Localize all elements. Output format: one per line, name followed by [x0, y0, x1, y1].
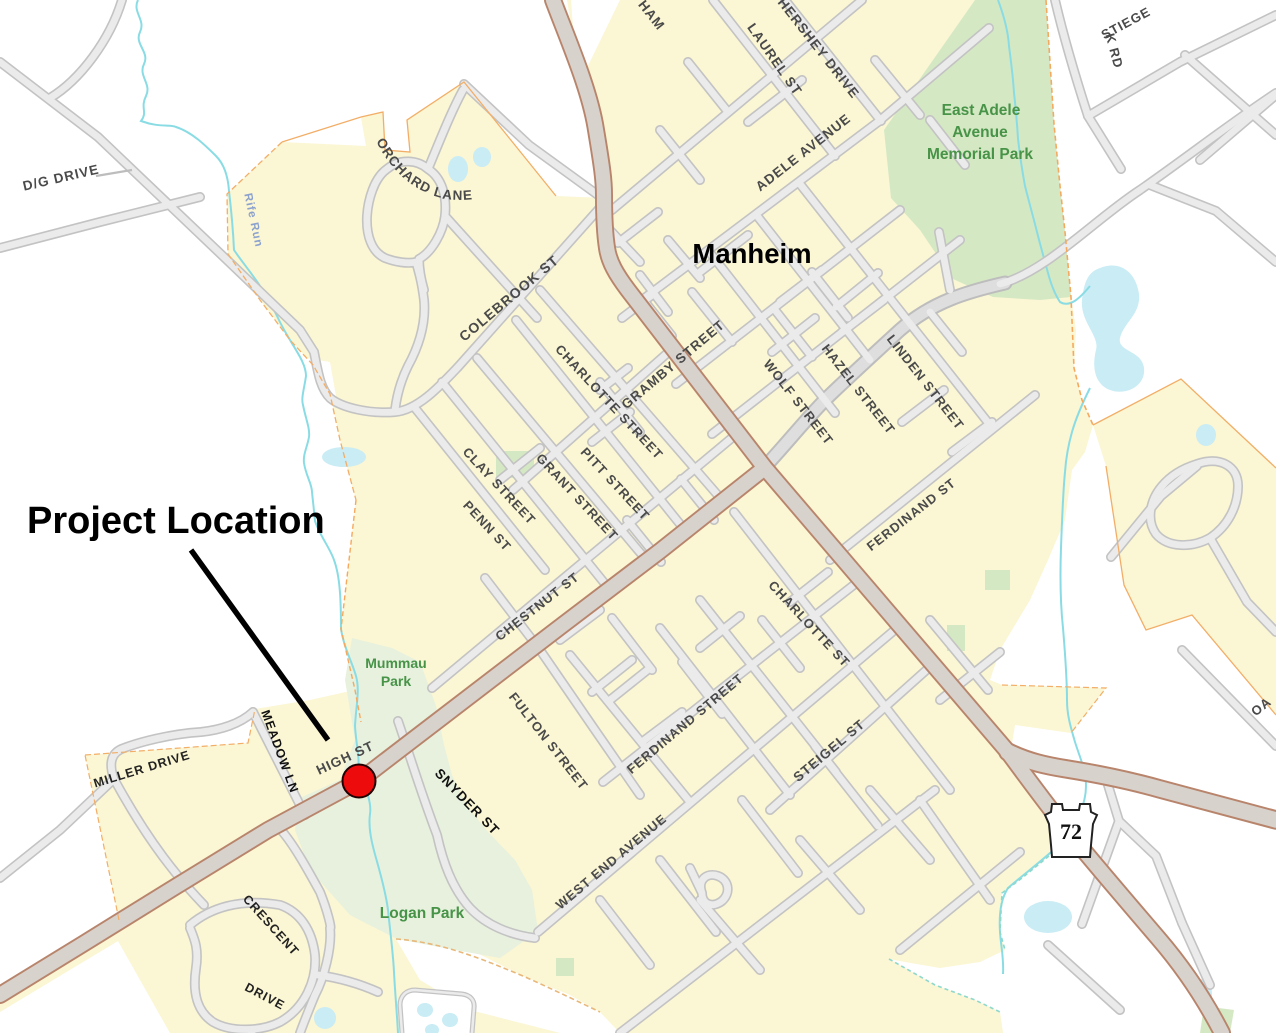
svg-text:Memorial Park: Memorial Park: [927, 146, 1033, 163]
svg-text:72: 72: [1060, 819, 1082, 844]
svg-text:Park: Park: [381, 673, 412, 689]
svg-text:East Adele: East Adele: [942, 102, 1021, 119]
svg-text:Project Location: Project Location: [27, 500, 325, 542]
svg-text:Mummau: Mummau: [365, 655, 426, 671]
svg-text:Manheim: Manheim: [692, 238, 811, 269]
svg-text:Avenue: Avenue: [952, 124, 1008, 141]
svg-text:Logan Park: Logan Park: [380, 905, 465, 922]
